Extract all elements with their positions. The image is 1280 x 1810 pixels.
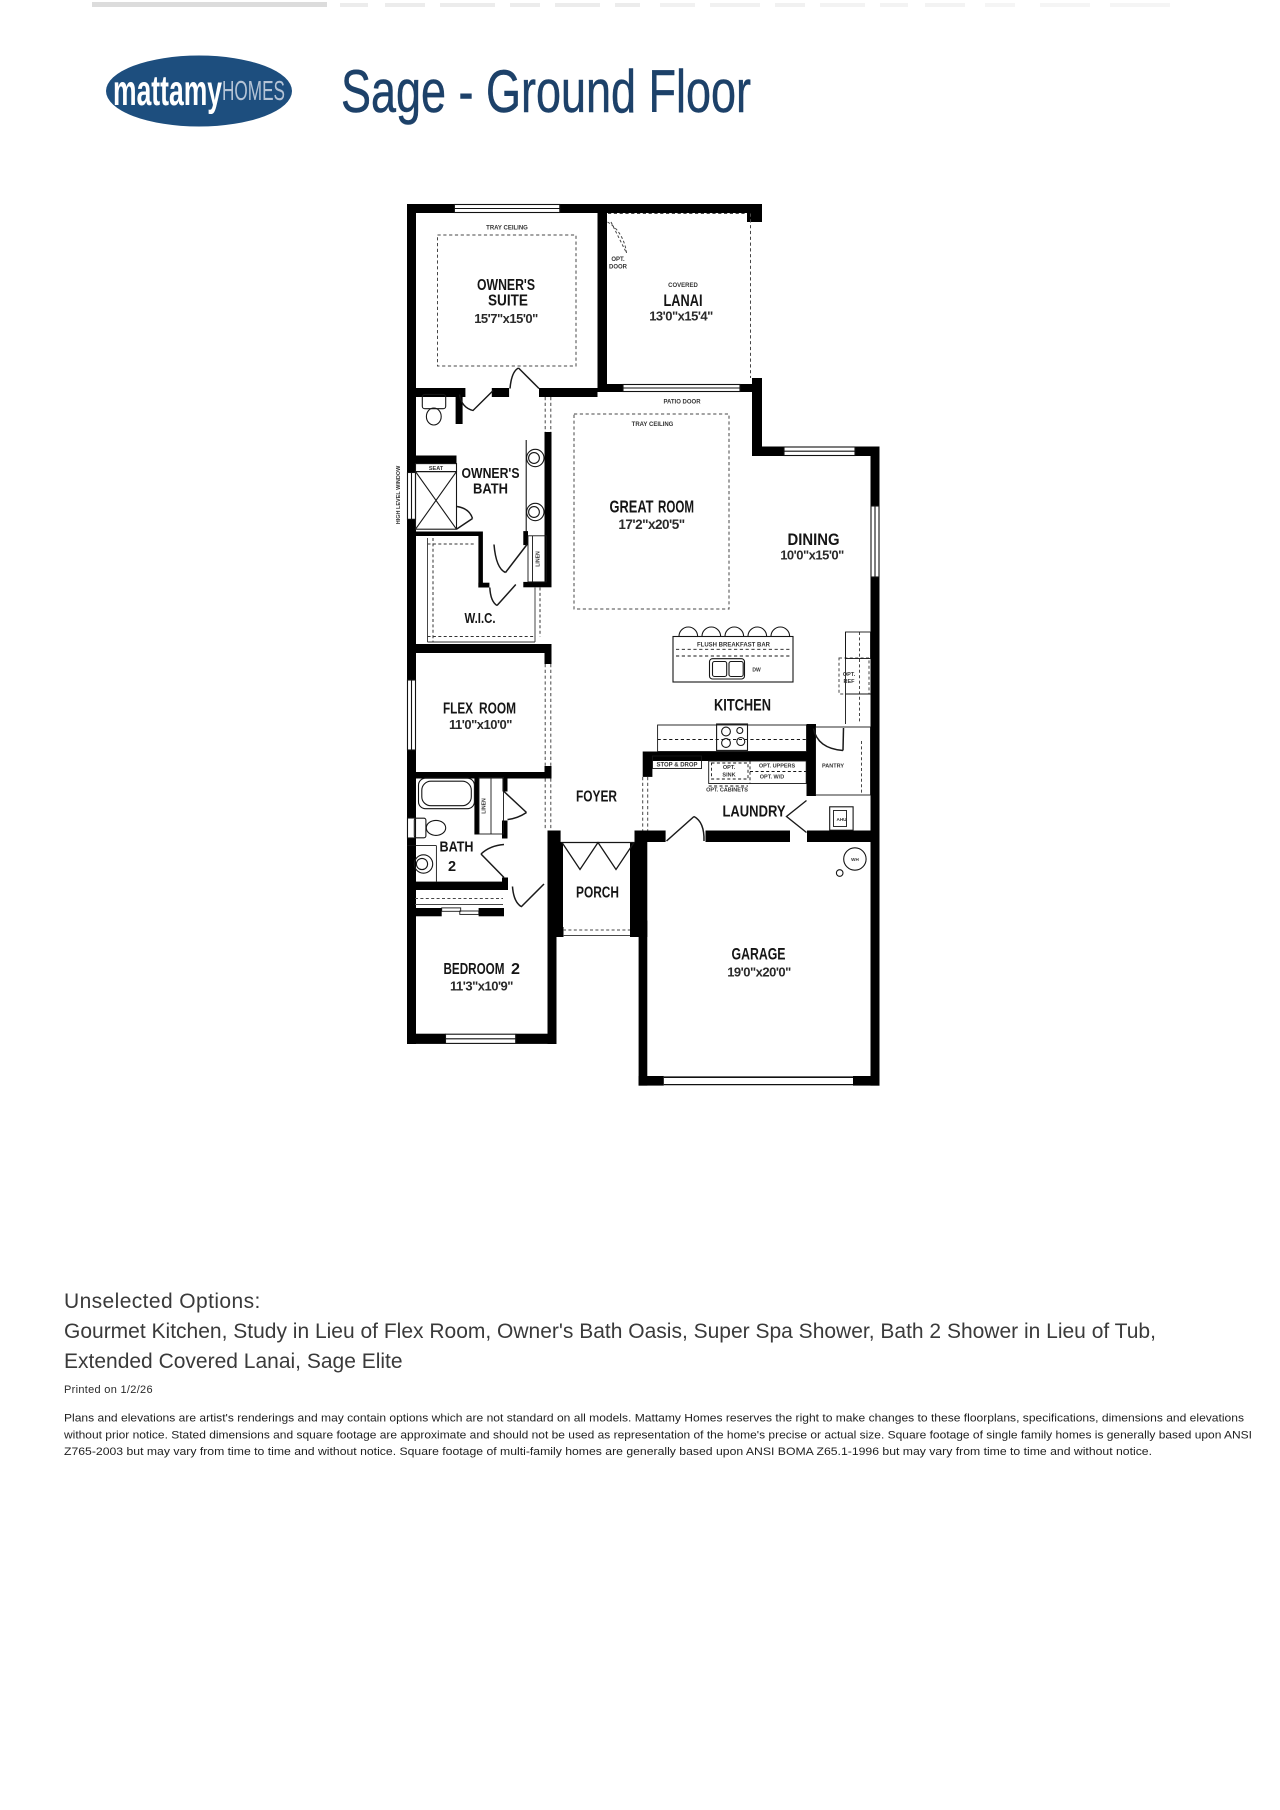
svg-text:HOMES: HOMES <box>222 75 285 106</box>
svg-text:BATH: BATH <box>440 840 474 856</box>
svg-text:11'3"x10'9": 11'3"x10'9" <box>450 979 513 994</box>
svg-text:OPT.: OPT. <box>611 257 625 263</box>
svg-text:SINK: SINK <box>722 773 735 779</box>
svg-text:OPT.: OPT. <box>723 765 736 771</box>
svg-text:BATH: BATH <box>473 481 508 498</box>
svg-text:19'0"x20'0": 19'0"x20'0" <box>727 965 791 980</box>
svg-text:GARAGE: GARAGE <box>732 946 786 964</box>
svg-text:PANTRY: PANTRY <box>822 764 844 770</box>
svg-text:Unselected Options:: Unselected Options: <box>64 1290 261 1313</box>
svg-text:OWNER'S: OWNER'S <box>462 465 520 482</box>
svg-text:GREAT: GREAT <box>610 497 654 517</box>
svg-text:13'0"x15'4": 13'0"x15'4" <box>649 309 713 324</box>
svg-text:TRAY CEILING: TRAY CEILING <box>486 226 528 232</box>
svg-text:SUITE: SUITE <box>488 293 528 310</box>
svg-text:HIGH LEVEL WINDOW: HIGH LEVEL WINDOW <box>396 465 402 524</box>
svg-text:mattamy: mattamy <box>113 67 222 115</box>
svg-text:10'0"x15'0": 10'0"x15'0" <box>780 548 844 563</box>
svg-text:OPT. W/D: OPT. W/D <box>760 775 784 781</box>
svg-text:TRAY CEILING: TRAY CEILING <box>632 422 674 428</box>
svg-text:OPT. UPPERS: OPT. UPPERS <box>759 764 796 770</box>
svg-text:SEAT: SEAT <box>429 466 444 472</box>
svg-text:OPT. CABINETS: OPT. CABINETS <box>706 788 748 794</box>
svg-text:OWNER'S: OWNER'S <box>477 277 535 294</box>
svg-text:Gourmet Kitchen, Study in Lieu: Gourmet Kitchen, Study in Lieu of Flex R… <box>64 1320 1156 1343</box>
svg-text:11'0"x10'0": 11'0"x10'0" <box>449 717 512 732</box>
svg-text:DINING: DINING <box>788 531 840 549</box>
svg-text:17'2"x20'5": 17'2"x20'5" <box>618 517 684 532</box>
svg-text:LINEN: LINEN <box>482 798 488 814</box>
svg-text:BEDROOM: BEDROOM <box>444 961 505 978</box>
svg-text:W.I.C.: W.I.C. <box>465 611 496 627</box>
svg-text:Sage - Ground Floor: Sage - Ground Floor <box>341 58 751 125</box>
svg-text:KITCHEN: KITCHEN <box>714 697 771 715</box>
svg-text:Extended Covered Lanai, Sage E: Extended Covered Lanai, Sage Elite <box>64 1350 403 1373</box>
svg-text:PATIO DOOR: PATIO DOOR <box>663 400 701 406</box>
svg-text:STOP & DROP: STOP & DROP <box>656 763 697 769</box>
svg-text:OPT.: OPT. <box>843 672 856 678</box>
svg-text:PORCH: PORCH <box>576 885 619 902</box>
svg-text:LAUNDRY: LAUNDRY <box>723 804 787 821</box>
svg-text:ROOM: ROOM <box>658 497 694 517</box>
svg-text:REF: REF <box>844 679 856 685</box>
svg-text:AHU: AHU <box>837 817 848 822</box>
svg-text:2: 2 <box>448 859 456 875</box>
svg-text:FLEX: FLEX <box>443 701 473 718</box>
svg-text:without prior notice. Stated d: without prior notice. Stated dimensions … <box>63 1429 1252 1441</box>
svg-text:ROOM: ROOM <box>479 701 516 718</box>
svg-text:Printed on 1/2/26: Printed on 1/2/26 <box>64 1384 153 1396</box>
svg-text:COVERED: COVERED <box>668 283 698 289</box>
svg-text:Z765-2003 but may vary from ti: Z765-2003 but may vary from time to time… <box>64 1446 1152 1458</box>
svg-text:LANAI: LANAI <box>664 291 703 310</box>
svg-text:Plans and elevations are artis: Plans and elevations are artist's render… <box>64 1413 1244 1425</box>
svg-text:WH: WH <box>851 857 859 862</box>
svg-text:DW: DW <box>752 668 761 674</box>
svg-text:2: 2 <box>511 961 520 978</box>
svg-text:DOOR: DOOR <box>609 265 628 271</box>
svg-text:LINEN: LINEN <box>536 551 542 567</box>
svg-text:FLUSH BREAKFAST BAR: FLUSH BREAKFAST BAR <box>697 643 771 649</box>
svg-text:15'7"x15'0": 15'7"x15'0" <box>474 311 538 326</box>
svg-text:FOYER: FOYER <box>576 789 617 806</box>
